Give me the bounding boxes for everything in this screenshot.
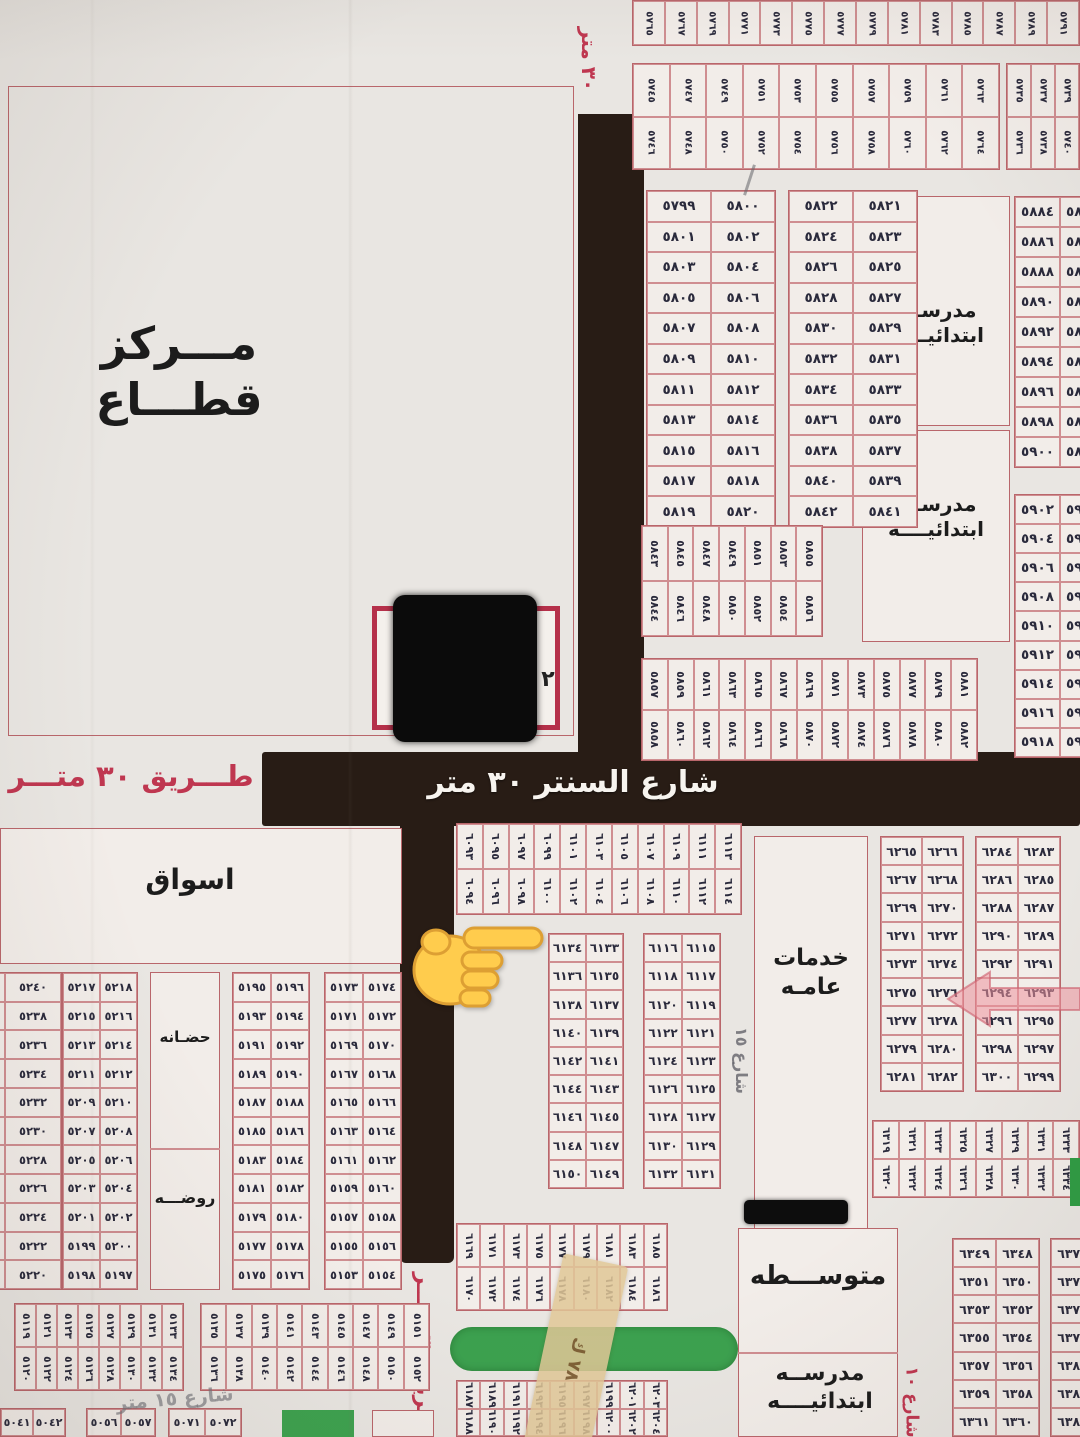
plot-6319: ٦٣١٩ [873,1121,899,1159]
plot-6320: ٦٣٢٠ [873,1159,899,1197]
plot-6108: ٦١٠٨ [638,869,664,914]
plot-5128: ٥١٢٨ [99,1347,120,1390]
plot-5162: ٥١٦٢ [363,1145,401,1174]
plot-6131: ٦١٣١ [682,1160,720,1188]
plot-row: ٥٧٩٩٥٨٠٠ [647,191,775,222]
plot-5870: ٥٨٧٠ [797,710,823,761]
plot-6328: ٦٣٢٨ [976,1159,1002,1197]
plot-6114: ٦١١٤ [715,869,741,914]
plot-6119: ٦١١٩ [682,990,720,1018]
plot-5210: ٥٢١٠ [100,1088,137,1117]
plot-5197: ٥١٩٧ [100,1260,137,1289]
plot-6333: ٦٣٣٣ [1053,1121,1079,1159]
plot-row: ٥٨١١٥٨١٢ [647,374,775,405]
plot-5849: ٥٨٤٩ [719,526,745,581]
plot-5217: ٥٢١٧ [63,973,100,1002]
plot-row: ٥٢٠٩٥٢١٠ [63,1088,137,1117]
plot-5178: ٥١٧٨ [271,1232,309,1261]
plot-row: ٦١٤٨٦١٤٧ [549,1132,623,1160]
plot-6327: ٦٣٢٧ [976,1121,1002,1159]
green-highlight-square [282,1410,354,1437]
plot-row: ٦٢٨٨٦٢٨٧ [976,893,1060,921]
plot-row: ٥٨٤٠٥٨٣٩ [789,466,917,497]
plot-6353: ٦٣٥٣ [953,1295,996,1323]
plot-5775: ٥٧٧٥ [792,1,824,45]
plot-5805: ٥٨٠٥ [647,283,711,314]
plot-5880: ٥٨٨٠ [925,710,951,761]
plot-6280: ٦٢٨٠ [922,1035,963,1063]
plot-row: ٥١٥٥٥١٥٦ [325,1232,401,1261]
plot-5191: ٥١٩١ [233,1030,271,1059]
plot-6360: ٦٣٦٠ [996,1408,1039,1436]
plot-6356: ٦٣٥٦ [996,1352,1039,1380]
plot-5885: ٥٨٨٥ [1060,227,1080,257]
plot-row: ٥١٦٣٥١٦٤ [325,1117,401,1146]
plot-6270: ٦٢٧٠ [922,893,963,921]
plot-row: ٥٨١٩٥٨٢٠ [647,496,775,527]
plot-5137: ٥١٣٧ [226,1304,251,1347]
plot-row: ٥٩١٦٥٩١٥ [1015,699,1080,728]
plot-5804: ٥٨٠٤ [711,252,775,283]
plot-6124: ٦١٢٤ [644,1047,682,1075]
plot-5205: ٥٢٠٥ [63,1145,100,1174]
plot-5173: ٥١٧٣ [325,973,363,1002]
plot-5202: ٥٢٠٢ [100,1203,137,1232]
plot-5749: ٥٧٤٩ [706,64,743,117]
plot-5809: ٥٨٠٩ [647,344,711,375]
plot-row: ٦٢٨٤٦٢٨٣ [976,837,1060,865]
plot-5738: ٥٧٣٨ [1031,117,1055,170]
plot-5843: ٥٨٤٣ [642,526,668,581]
plot-row: ٥٨٣٨٥٨٣٧ [789,435,917,466]
plot-5760: ٥٧٦٠ [889,117,926,170]
plot-row: ٥٢٠٥٥٢٠٦ [63,1145,137,1174]
plot-6107: ٦١٠٧ [638,824,664,869]
plot-5183: ٥١٨٣ [233,1145,271,1174]
plot-6172: ٦١٧٢ [480,1267,503,1310]
plot-5150: ٥١٥٠ [378,1347,403,1390]
plot-6287: ٦٢٨٧ [1018,893,1060,921]
plot-6268: ٦٢٦٨ [922,865,963,893]
plot-row: ٦١٣٠٦١٢٩ [644,1132,720,1160]
sector-center-title: مـــركز قطـــاع [14,316,344,429]
pink-arrow-annotation [946,964,1080,1034]
road-30m-top-annotation: ٣٠ متر [566,4,612,114]
plot-5159: ٥١٥٩ [325,1174,363,1203]
plot-5915: ٥٩١٥ [1060,699,1080,728]
plot-5821: ٥٨٢١ [853,191,917,222]
plot-6354: ٦٣٥٤ [996,1323,1039,1351]
plot-row: ٥٢٢٥٥٢٢٦ [0,1174,61,1203]
plot-5213: ٥٢١٣ [63,1030,100,1059]
plot-5166: ٥١٦٦ [363,1088,401,1117]
plot-5785: ٥٧٨٥ [952,1,984,45]
plot-5905: ٥٩٠٥ [1060,553,1080,582]
plot-5791: ٥٧٩١ [1047,1,1079,45]
plot-5222: ٥٢٢٢ [5,1232,61,1261]
redaction-bar [744,1200,848,1224]
plot-5153: ٥١٥٣ [325,1260,363,1289]
plot-5171: ٥١٧١ [325,1002,363,1031]
plot-6201: ٦٢٠١ [620,1381,643,1409]
plot-6326: ٦٣٢٦ [950,1159,976,1197]
plot-row: ٥٨٠٣٥٨٠٤ [647,252,775,283]
plot-5746: ٥٧٤٦ [633,117,670,170]
plot-row: ٥١٦٧٥١٦٨ [325,1059,401,1088]
plot-6350: ٦٣٥٠ [996,1267,1039,1295]
nursery-label: حضـانه [150,1028,220,1047]
plot-row: ٥١٩٣٥١٩٤ [233,1002,309,1031]
plot-5825: ٥٨٢٥ [853,252,917,283]
plot-5151: ٥١٥١ [404,1304,429,1347]
plot-6118: ٦١١٨ [644,962,682,990]
plot-6381: ٦٣٨١ [1051,1352,1080,1380]
plot-row: ٦٣٥١٦٣٥٠ [953,1267,1039,1295]
plot-5819: ٥٨١٩ [647,496,711,527]
plot-row: ٦١٢٦٦١٢٥ [644,1075,720,1103]
plot-6186: ٦١٨٦ [644,1267,667,1310]
plot-5147: ٥١٤٧ [353,1304,378,1347]
plot-row: ٥٩٠٨٥٩٠٧ [1015,582,1080,611]
plot-5215: ٥٢١٥ [63,1002,100,1031]
plot-row: ٦٢٧٩٦٢٨٠ [881,1035,963,1063]
plot-5206: ٥٢٠٦ [100,1145,137,1174]
plot-row: ٥١٥٩٥١٦٠ [325,1174,401,1203]
plot-row: ٥٨٣٠٥٨٢٩ [789,313,917,344]
plot-6122: ٦١٢٢ [644,1019,682,1047]
plot-5902: ٥٩٠٢ [1015,495,1060,524]
plot-row: ٥٩٠٤٥٩٠٣ [1015,524,1080,553]
plot-row: ٥٢٣٣٥٢٣٤ [0,1059,61,1088]
plot-5755: ٥٧٥٥ [816,64,853,117]
plot-row: ٦٣٦١٦٣٦٠ [953,1408,1039,1436]
plot-5736: ٥٧٣٦ [1007,117,1031,170]
plot-5909: ٥٩٠٩ [1060,611,1080,640]
plot-5850: ٥٨٥٠ [719,581,745,636]
plot-5841: ٥٨٤١ [853,496,917,527]
plot-5812: ٥٨١٢ [711,374,775,405]
plot-6173: ٦١٧٣ [504,1224,527,1267]
plot-5180: ٥١٨٠ [271,1203,309,1232]
plot-6144: ٦١٤٤ [549,1075,586,1103]
plot-5181: ٥١٨١ [233,1174,271,1203]
plot-6137: ٦١٣٧ [586,990,623,1018]
plot-5124: ٥١٢٤ [57,1347,78,1390]
plot-6174: ٦١٧٤ [504,1267,527,1310]
plot-6272: ٦٢٧٢ [922,922,963,950]
plot-5912: ٥٩١٢ [1015,641,1060,670]
middle-school-label: متوســـطه [740,1260,896,1293]
plot-block-g: ٦٠٩٣٦٠٩٥٦٠٩٧٦٠٩٩٦١٠١٦١٠٣٦١٠٥٦١٠٧٦١٠٩٦١١١… [456,823,742,915]
plot-5860: ٥٨٦٠ [668,710,694,761]
plot-block-r2: ٥١٣٥٥١٣٧٥١٣٩٥١٤١٥١٤٣٥١٤٥٥١٤٧٥١٤٩٥١٥١٥١٣٦… [200,1303,430,1391]
plot-5901: ٥٩٠١ [1060,495,1080,524]
plot-6135: ٦١٣٥ [586,962,623,990]
plot-5913: ٥٩١٣ [1060,670,1080,699]
plot-6171: ٦١٧١ [480,1224,503,1267]
plot-row: ٥٨٠٧٥٨٠٨ [647,313,775,344]
empty-plot-box [372,1410,434,1437]
plot-row: ٦٣٥٩٦٣٥٨ [953,1380,1039,1408]
plot-row: ٥٩٠٢٥٩٠١ [1015,495,1080,524]
plot-row: ٦١٣٤٦١٣٣ [549,934,623,962]
plot-block-h: ٦١٣٤٦١٣٣٦١٣٦٦١٣٥٦١٣٨٦١٣٧٦١٤٠٦١٣٩٦١٤٢٦١٤١… [548,933,624,1189]
plot-5739: ٥٧٣٩ [1055,64,1079,117]
plot-5847: ٥٨٤٧ [693,526,719,581]
plot-5898: ٥٨٩٨ [1015,407,1060,437]
plot-5839: ٥٨٣٩ [853,466,917,497]
plot-row: ٦٢٩٠٦٢٨٩ [976,922,1060,950]
plot-6300: ٦٣٠٠ [976,1063,1018,1091]
plot-5907: ٥٩٠٧ [1060,582,1080,611]
plot-6329: ٦٣٢٩ [1002,1121,1028,1159]
plot-6170: ٦١٧٠ [457,1267,480,1310]
plot-6282: ٦٢٨٢ [922,1063,963,1091]
plot-5828: ٥٨٢٨ [789,283,853,314]
plot-5190: ٥١٩٠ [271,1059,309,1088]
public-services-label: خدمات عامـه [756,944,866,1002]
plot-6267: ٦٢٦٧ [881,865,922,893]
plot-row: ٦٣٥٥٦٣٥٤ [953,1323,1039,1351]
plot-5754: ٥٧٥٤ [779,117,816,170]
plot-5911: ٥٩١١ [1060,641,1080,670]
plot-5837: ٥٨٣٧ [853,435,917,466]
plot-5234: ٥٢٣٤ [5,1059,61,1088]
plot-6149: ٦١٤٩ [586,1160,623,1188]
plot-row: ٦٣٠٠٦٢٩٩ [976,1063,1060,1091]
plot-5042: ٥٠٤٢ [33,1409,65,1436]
plot-row: ٥٢٣٥٥٢٣٦ [0,1030,61,1059]
plot-row: ٥٨١٥٥٨١٦ [647,435,775,466]
plot-5783: ٥٧٨٣ [920,1,952,45]
plate-mark: ٢ [538,666,558,694]
plot-5867: ٥٨٦٧ [771,659,797,710]
plot-6093: ٦٠٩٣ [457,824,483,869]
plot-5862: ٥٨٦٢ [694,710,720,761]
plot-6127: ٦١٢٧ [682,1103,720,1131]
center-street-label: شارع السنتر ٣٠ متر [408,764,738,802]
plot-6332: ٦٣٣٢ [1028,1159,1054,1197]
plot-5873: ٥٨٧٣ [848,659,874,710]
plot-row: ٦٢٦٥٦٢٦٦ [881,837,963,865]
plot-5854: ٥٨٥٤ [771,581,797,636]
plot-5896: ٥٨٩٦ [1015,377,1060,407]
plot-row: ٥٢٠١٥٢٠٢ [63,1203,137,1232]
plot-6273: ٦٢٧٣ [881,950,922,978]
plot-6141: ٦١٤١ [586,1047,623,1075]
plot-5866: ٥٨٦٦ [745,710,771,761]
plot-5874: ٥٨٧٤ [848,710,874,761]
plot-5208: ٥٢٠٨ [100,1117,137,1146]
plot-row: ٥٨٩٠٥٨٨٩ [1015,287,1080,317]
plot-row: ٥٨٩٢٥٨٩١ [1015,317,1080,347]
plot-row: ٦١٣٨٦١٣٧ [549,990,623,1018]
plot-row: ٥١٧١٥١٧٢ [325,1002,401,1031]
plot-6123: ٦١٢٣ [682,1047,720,1075]
plot-5916: ٥٩١٦ [1015,699,1060,728]
plot-6112: ٦١١٢ [689,869,715,914]
plot-5881: ٥٨٨١ [951,659,977,710]
plot-5832: ٥٨٣٢ [789,344,853,375]
public-services-block [754,836,868,1232]
plot-5167: ٥١٦٧ [325,1059,363,1088]
plot-6324: ٦٣٢٤ [925,1159,951,1197]
plot-row: ٥٨٣٦٥٨٣٥ [789,405,917,436]
plot-6283: ٦٢٨٣ [1018,837,1060,865]
plot-6383: ٦٣٨٣ [1051,1380,1080,1408]
plot-5194: ٥١٩٤ [271,1002,309,1031]
plot-6352: ٦٣٥٢ [996,1295,1039,1323]
plot-6109: ٦١٠٩ [664,824,690,869]
plot-5890: ٥٨٩٠ [1015,287,1060,317]
plot-6113: ٦١١٣ [715,824,741,869]
plot-6330: ٦٣٣٠ [1002,1159,1028,1197]
plot-row: ٥٢١٣٥٢١٤ [63,1030,137,1059]
plot-6133: ٦١٣٣ [586,934,623,962]
plot-row: ٦١٤٠٦١٣٩ [549,1019,623,1047]
plot-5745: ٥٧٤٥ [633,64,670,117]
plot-5187: ٥١٨٧ [233,1088,271,1117]
plot-6116: ٦١١٦ [644,934,682,962]
block-divider [150,1148,220,1150]
plot-row: ٦٣٨٥٦٣٨٤ [1051,1408,1080,1436]
plot-5773: ٥٧٧٣ [760,1,792,45]
plot-row: ٥٨٩٨٥٨٩٧ [1015,407,1080,437]
plot-row: ٥٨٢٢٥٨٢١ [789,191,917,222]
plot-6281: ٦٢٨١ [881,1063,922,1091]
plot-row: ٥١٩٨٥١٩٧ [63,1260,137,1289]
plot-5806: ٥٨٠٦ [711,283,775,314]
plot-5204: ٥٢٠٤ [100,1174,137,1203]
plot-5748: ٥٧٤٨ [670,117,707,170]
plot-row: ٥٨٢٦٥٨٢٥ [789,252,917,283]
plot-5120: ٥١٢٠ [15,1347,36,1390]
plot-5139: ٥١٣٩ [252,1304,277,1347]
plot-block-top-band: ٥٧٤٥٥٧٤٧٥٧٤٩٥٧٥١٥٧٥٣٥٧٥٥٥٧٥٧٥٧٥٩٥٧٦١٥٧٦٣… [632,63,1000,170]
plot-row: ٦٢٩٨٦٢٩٧ [976,1035,1060,1063]
plot-5852: ٥٨٥٢ [745,581,771,636]
plot-5189: ٥١٨٩ [233,1059,271,1088]
plot-5803: ٥٨٠٣ [647,252,711,283]
plot-row: ٦٢٦٧٦٢٦٨ [881,865,963,893]
plot-5134: ٥١٣٤ [162,1347,183,1390]
plot-5240: ٥٢٤٠ [5,973,61,1002]
plot-row: ٥٢٣١٥٢٣٢ [0,1088,61,1117]
plot-row: ٥١٧٧٥١٧٨ [233,1232,309,1261]
plot-5758: ٥٧٥٨ [853,117,890,170]
plot-6138: ٦١٣٨ [549,990,586,1018]
plot-5236: ٥٢٣٦ [5,1030,61,1059]
plot-row: ٥١٨٣٥١٨٤ [233,1145,309,1174]
plot-5757: ٥٧٥٧ [853,64,890,117]
plot-5176: ٥١٧٦ [271,1260,309,1289]
plot-5740: ٥٧٤٠ [1055,117,1079,170]
plot-5827: ٥٨٢٧ [853,283,917,314]
plot-row: ٥٨٠٥٥٨٠٦ [647,283,775,314]
plot-5802: ٥٨٠٢ [711,222,775,253]
plot-6191: ٦١٩١ [504,1381,527,1409]
plot-6279: ٦٢٧٩ [881,1035,922,1063]
plot-5186: ٥١٨٦ [271,1117,309,1146]
plot-6099: ٦٠٩٩ [534,824,560,869]
plot-5747: ٥٧٤٧ [670,64,707,117]
plot-5830: ٥٨٣٠ [789,313,853,344]
redaction-square [393,595,537,742]
plot-row: ٦٣٧٣٦٣٧٢ [1051,1239,1080,1267]
vertical-road-top [578,114,644,756]
plot-row: ٥٨٣٤٥٨٣٣ [789,374,917,405]
plot-5815: ٥٨١٥ [647,435,711,466]
plot-5861: ٥٨٦١ [694,659,720,710]
plot-5801: ٥٨٠١ [647,222,711,253]
plot-5184: ٥١٨٤ [271,1145,309,1174]
plot-5868: ٥٨٦٨ [771,710,797,761]
plot-5174: ٥١٧٤ [363,973,401,1002]
plot-6130: ٦١٣٠ [644,1132,682,1160]
plot-5767: ٥٧٦٧ [665,1,697,45]
plot-5879: ٥٨٧٩ [925,659,951,710]
plot-block-c: ٥٨٨٤٥٨٨٣٥٨٨٦٥٨٨٥٥٨٨٨٥٨٨٧٥٨٩٠٥٨٨٩٥٨٩٢٥٨٩١… [1014,196,1080,468]
plot-5894: ٥٨٩٤ [1015,347,1060,377]
plot-5872: ٥٨٧٢ [822,710,848,761]
plot-row: ٥٢٠٣٥٢٠٤ [63,1174,137,1203]
plot-5735: ٥٧٣٥ [1007,64,1031,117]
plot-5871: ٥٨٧١ [822,659,848,710]
plot-row: ٥٩٠٦٥٩٠٥ [1015,553,1080,582]
plot-row: ٥١٩٥٥١٩٦ [233,973,309,1002]
plot-6321: ٦٣٢١ [899,1121,925,1159]
plot-5200: ٥٢٠٠ [100,1232,137,1261]
plot-6175: ٦١٧٥ [527,1224,550,1267]
plot-block-top-row-cut: ٥٧٦٥٥٧٦٧٥٧٦٩٥٧٧١٥٧٧٣٥٧٧٥٥٧٧٧٥٧٧٩٥٧٨١٥٧٨٣… [632,0,1080,46]
plot-row: ٥٨٠١٥٨٠٢ [647,222,775,253]
plot-6373: ٦٣٧٣ [1051,1239,1080,1267]
plot-5888: ٥٨٨٨ [1015,257,1060,287]
plot-6351: ٦٣٥١ [953,1267,996,1295]
plot-5753: ٥٧٥٣ [779,64,816,117]
plot-5810: ٥٨١٠ [711,344,775,375]
plot-5887: ٥٨٨٧ [1060,257,1080,287]
plot-6288: ٦٢٨٨ [976,893,1018,921]
plot-6095: ٦٠٩٥ [483,824,509,869]
plot-6142: ٦١٤٢ [549,1047,586,1075]
plot-5892: ٥٨٩٢ [1015,317,1060,347]
plot-row: ٦١٥٠٦١٤٩ [549,1160,623,1188]
plot-6169: ٦١٦٩ [457,1224,480,1267]
plot-5131: ٥١٣١ [141,1304,162,1347]
plot-5838: ٥٨٣٨ [789,435,853,466]
plot-row: ٦١٢٤٦١٢٣ [644,1047,720,1075]
plot-5811: ٥٨١١ [647,374,711,405]
plot-5878: ٥٨٧٨ [900,710,926,761]
plot-5135: ٥١٣٥ [201,1304,226,1347]
plot-block-u: ٦٣١٩٦٣٢١٦٣٢٣٦٣٢٥٦٣٢٧٦٣٢٩٦٣٣١٦٣٣٣٦٣٢٠٦٣٢٢… [872,1120,1080,1198]
plot-5826: ٥٨٢٦ [789,252,853,283]
plot-5836: ٥٨٣٦ [789,405,853,436]
plot-row: ٥١٥٧٥١٥٨ [325,1203,401,1232]
plot-row: ٥١٧٥٥١٧٦ [233,1260,309,1289]
plot-row: ٥١٦٩٥١٧٠ [325,1030,401,1059]
plot-block-br1: ٥٠٤١٥٠٤٢ [0,1408,66,1437]
plot-5762: ٥٧٦٢ [926,117,963,170]
plot-5893: ٥٨٩٣ [1060,347,1080,377]
plot-5119: ٥١١٩ [15,1304,36,1347]
plot-6284: ٦٢٨٤ [976,837,1018,865]
plot-5917: ٥٩١٧ [1060,728,1080,757]
plot-5918: ٥٩١٨ [1015,728,1060,757]
plot-6200: ٦٢٠٠ [597,1409,620,1437]
plot-block-i: ٦١١٦٦١١٥٦١١٨٦١١٧٦١٢٠٦١١٩٦١٢٢٦١٢١٦١٢٤٦١٢٣… [643,933,721,1189]
